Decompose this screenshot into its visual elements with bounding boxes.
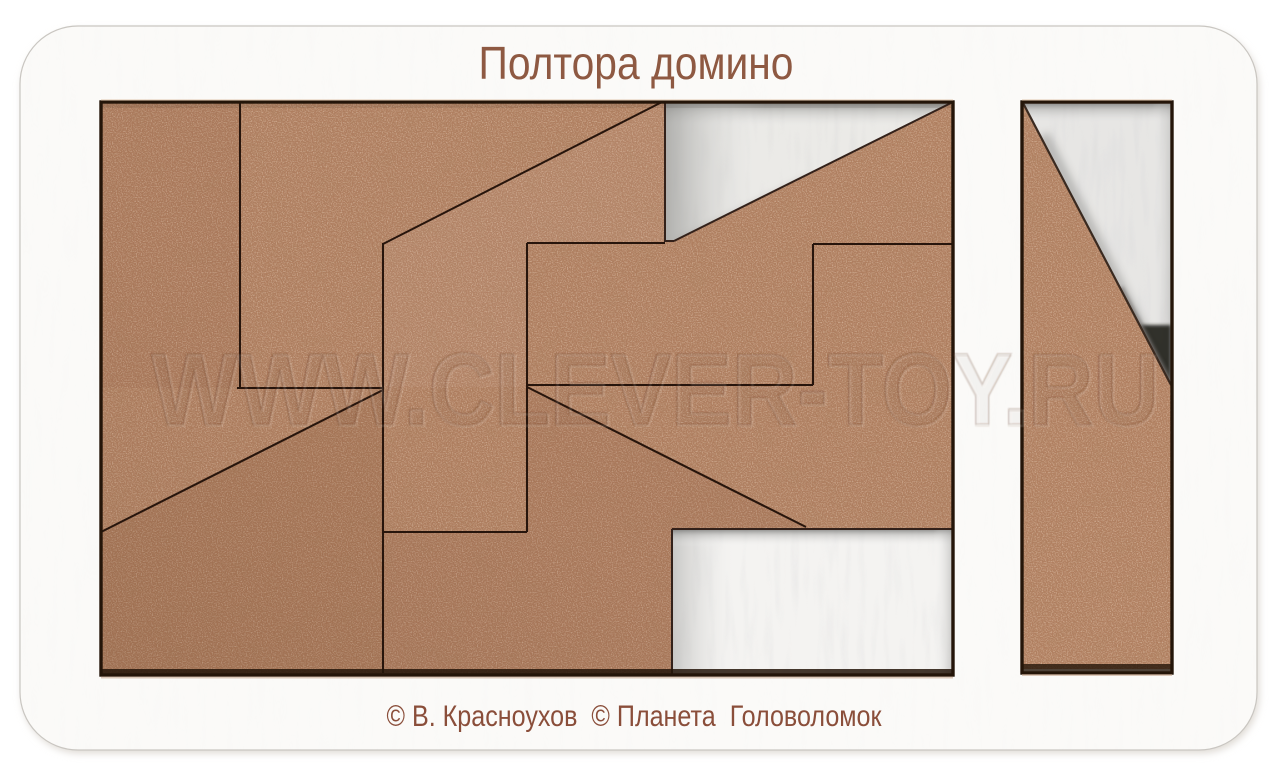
svg-text:Полтора домино: Полтора домино	[479, 37, 794, 89]
svg-text:WWW.CLEVER-TOY.RU: WWW.CLEVER-TOY.RU	[151, 332, 1159, 446]
svg-text:© В. Красноухов © Планета Го: © В. Красноухов © Планета Головоломок	[387, 700, 883, 733]
